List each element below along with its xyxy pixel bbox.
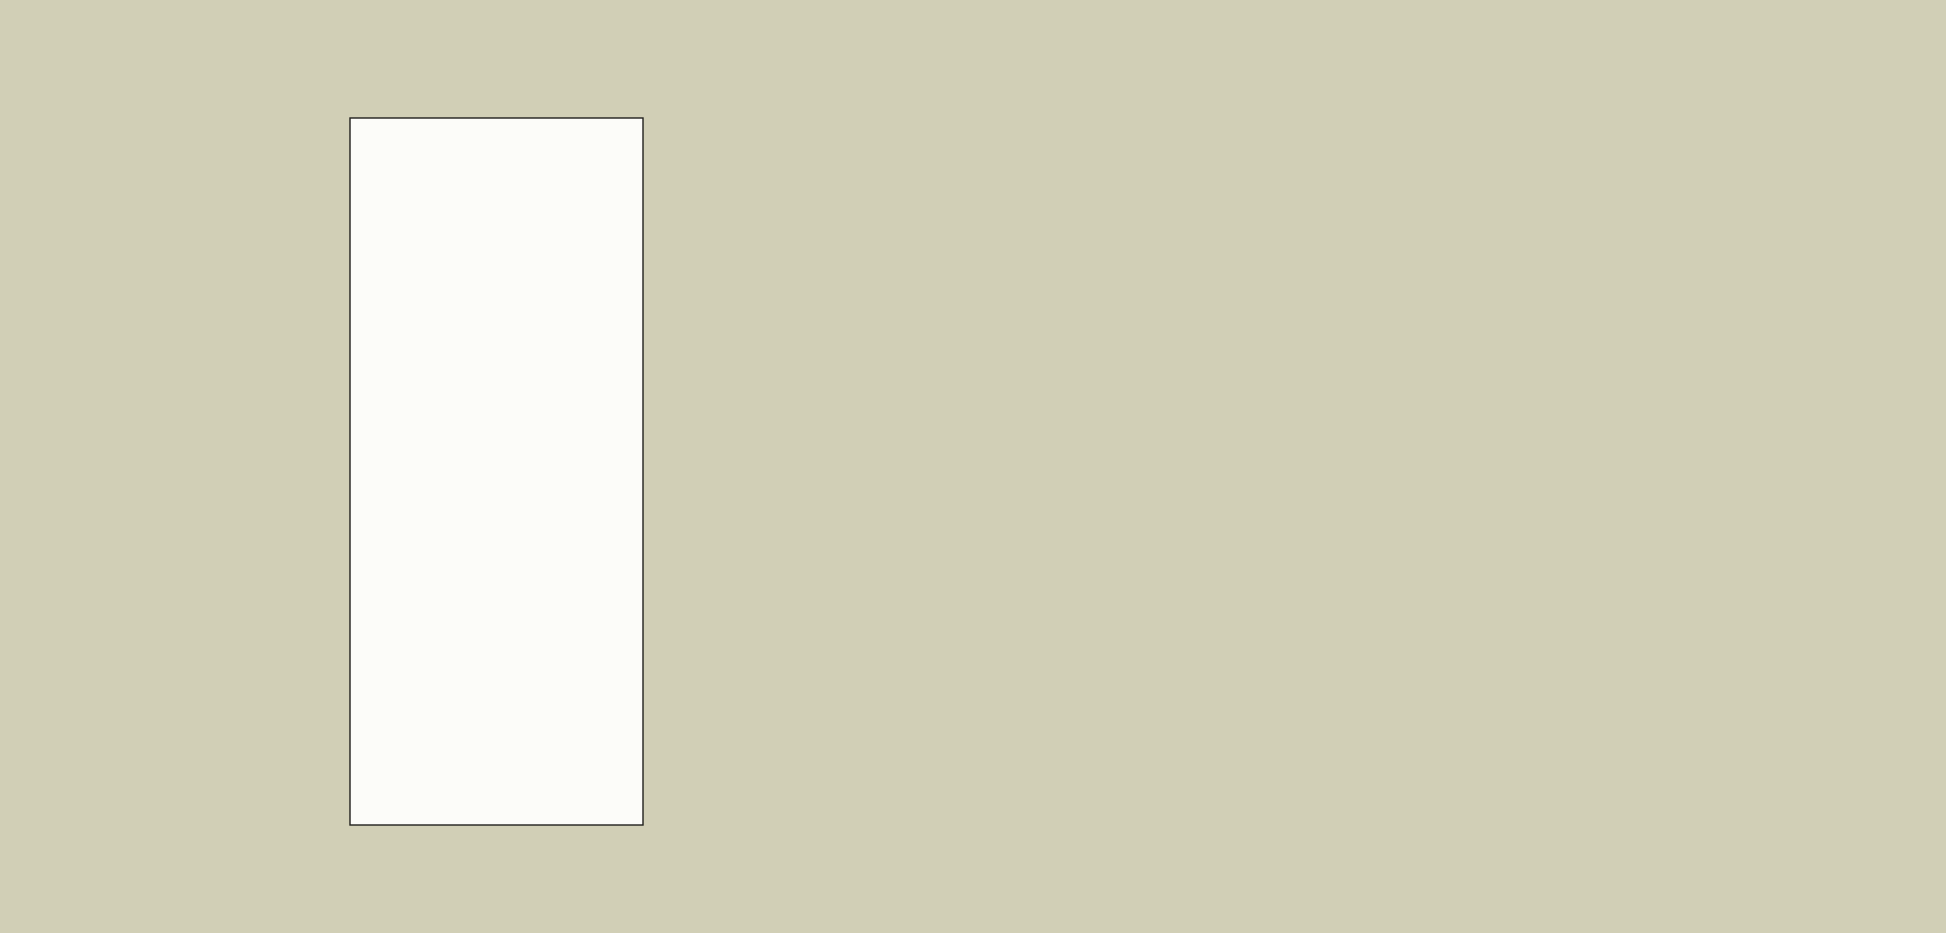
viewport-background xyxy=(0,0,1946,933)
back-panel xyxy=(350,118,643,825)
cad-drawing-stage xyxy=(0,0,1946,933)
cad-viewport[interactable] xyxy=(0,0,1946,933)
